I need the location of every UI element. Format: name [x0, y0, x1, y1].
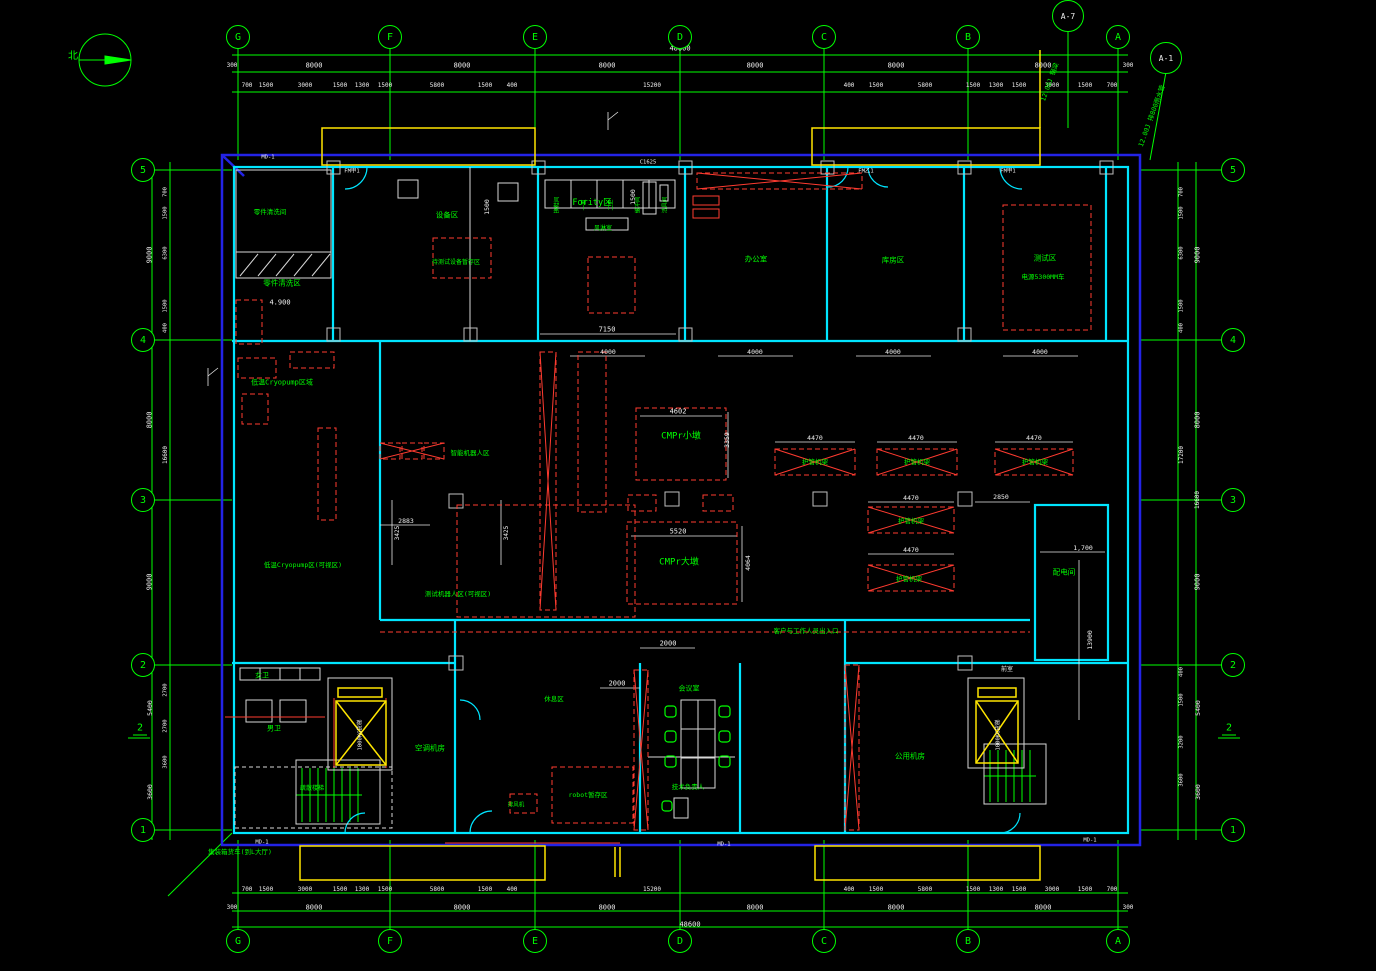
- plan-label: 8000: [888, 63, 905, 70]
- plan-label: 5800: [918, 887, 932, 893]
- plan-label: 2000: [660, 641, 677, 648]
- plan-label: 疏散楼梯: [300, 786, 324, 792]
- plan-label: 9000: [147, 247, 154, 264]
- plan-label: 办公室: [745, 255, 768, 263]
- plan-label: 13900: [1087, 630, 1094, 650]
- plan-label: 空调机房: [415, 744, 445, 752]
- plan-label: 9000: [147, 574, 154, 591]
- plan-label: 客户与工作人员出入口: [774, 628, 839, 635]
- plan-label: 4000: [600, 349, 616, 356]
- plan-label: 4000: [885, 349, 901, 356]
- grid-bubble-top-D: D: [668, 25, 692, 49]
- plan-label: 3000: [1045, 887, 1059, 893]
- plan-label: 16600: [1195, 491, 1201, 509]
- grid-bubble-top-C: C: [812, 25, 836, 49]
- grid-bubble-left-1: 1: [131, 818, 155, 842]
- plan-label: 技术负责人: [672, 784, 705, 791]
- plan-label: MD-1: [1083, 838, 1096, 844]
- plan-label: 3200: [1179, 735, 1185, 748]
- grid-bubble-right-2: 2: [1221, 653, 1245, 677]
- plan-label: 护管机架: [1022, 459, 1048, 466]
- plan-label: 1500: [478, 83, 492, 89]
- plan-label: CMPr小墩: [661, 433, 701, 442]
- plan-label: 1300: [989, 887, 1003, 893]
- plan-label: 15200: [643, 887, 661, 893]
- plan-label: 电源5300MM车: [1022, 274, 1065, 281]
- plan-label: 3600: [1179, 773, 1185, 786]
- stairs-left: [296, 768, 362, 822]
- stairs-right: [984, 750, 1036, 802]
- grid-bubble-top-G: G: [226, 25, 250, 49]
- plan-label: 设备区: [436, 211, 459, 219]
- plan-label: 3600: [147, 784, 154, 800]
- partitions-furniture: [208, 112, 1113, 828]
- plan-label: FM甲1: [1000, 169, 1015, 175]
- plan-label: 8000: [1035, 905, 1052, 912]
- plan-label: 排风机: [508, 803, 525, 809]
- plan-label: 6300: [163, 246, 169, 259]
- plan-label: 待测试设备暂存区: [432, 260, 480, 266]
- plan-label: 3600: [163, 755, 169, 768]
- plan-label: 400: [163, 323, 169, 333]
- plan-label: 1,700: [1073, 545, 1093, 552]
- plan-label: 1500: [1078, 83, 1092, 89]
- plan-label: 风淋室: [594, 226, 612, 232]
- plan-label: 4602: [670, 409, 687, 416]
- plan-label: 女卫: [255, 673, 269, 680]
- plan-label: 5800: [918, 83, 932, 89]
- plan-label: 3359: [724, 432, 731, 448]
- plan-label: 5800: [430, 887, 444, 893]
- grid-bubble-bottom-B: B: [956, 929, 980, 953]
- plan-label: 8000: [454, 63, 471, 70]
- plan-label: 1500: [869, 83, 883, 89]
- plan-label: robot暂存区: [568, 792, 607, 799]
- plan-label: 9000: [1195, 574, 1202, 591]
- plan-label: 4.900: [269, 300, 290, 307]
- grid-bubble-right-3: 3: [1221, 488, 1245, 512]
- plan-label: 1500: [333, 887, 347, 893]
- plan-label: 2883: [398, 518, 414, 525]
- plan-label: 3000: [298, 887, 312, 893]
- plan-label: 300: [1123, 905, 1134, 911]
- plan-label: 库房区: [882, 256, 905, 264]
- plan-label: 前室: [1001, 667, 1013, 673]
- plan-label: 1500: [259, 887, 273, 893]
- plan-label: C1625: [640, 160, 657, 166]
- plan-label: 1500: [1179, 693, 1185, 706]
- plan-label: 300: [1123, 63, 1134, 69]
- plan-label: Fority区: [572, 199, 611, 208]
- section-marker: 2: [1222, 723, 1236, 736]
- grid-bubble-bottom-F: F: [378, 929, 402, 953]
- plan-label: 1500: [1012, 887, 1026, 893]
- plan-label: 6300: [1179, 246, 1185, 259]
- equipment-annotations: [225, 173, 1091, 843]
- plan-label: 1500: [259, 83, 273, 89]
- plan-label: 5800: [430, 83, 444, 89]
- plan-label: 公用机房: [895, 752, 925, 760]
- plan-label: 2700: [163, 683, 169, 696]
- grid-bubble-left-5: 5: [131, 158, 155, 182]
- cad-floor-plan-viewport: 北 零件清洗间零件清洗区4.900设备区待测试设备暂存区Fority区风淋室办公…: [0, 0, 1376, 971]
- plan-label: 会议室: [679, 686, 700, 693]
- plan-label: 300: [227, 63, 238, 69]
- plan-label: 休息区: [544, 696, 564, 703]
- plan-label: 400: [844, 83, 855, 89]
- plan-label: 8000: [1195, 412, 1202, 429]
- plan-label: 缓冲间: [636, 197, 642, 214]
- grid-bubble-right-5: 5: [1221, 158, 1245, 182]
- plan-label: 一更: [582, 199, 588, 210]
- plan-label: 700: [242, 887, 253, 893]
- detail-callout-A-7: A-7: [1052, 0, 1084, 32]
- grid-bubble-top-B: B: [956, 25, 980, 49]
- plan-label: 400: [1179, 667, 1185, 677]
- plan-label: 8000: [888, 905, 905, 912]
- plan-label: 1300: [989, 83, 1003, 89]
- plan-label: 零件清洗间: [254, 209, 287, 216]
- plan-label: 8000: [306, 63, 323, 70]
- grid-bubble-top-F: F: [378, 25, 402, 49]
- plan-label: 9000: [1195, 247, 1202, 264]
- plan-label: 7150: [599, 327, 616, 334]
- plan-label: 护管机架: [802, 459, 828, 466]
- plan-label: 4470: [903, 547, 919, 554]
- plan-label: 3425: [395, 526, 401, 540]
- floor-plan-drawing: [0, 0, 1376, 971]
- plan-label: 400: [507, 887, 518, 893]
- plan-label: 4470: [908, 435, 924, 442]
- plan-label: 8000: [147, 412, 154, 429]
- plan-label: 测试机器人区(可视区): [425, 591, 491, 598]
- plan-label: 300: [227, 905, 238, 911]
- plan-label: 4000: [747, 349, 763, 356]
- grid-bubble-top-E: E: [523, 25, 547, 49]
- plan-label: 15200: [643, 83, 661, 89]
- plan-label: 5400: [147, 700, 154, 716]
- plan-label: 1500: [484, 199, 491, 215]
- plan-label: 700: [1107, 887, 1118, 893]
- plan-label: 零件清洗区: [263, 279, 301, 287]
- plan-label: 换鞋间: [555, 197, 561, 214]
- grid-bubble-bottom-A: A: [1106, 929, 1130, 953]
- plan-label: MD-1: [717, 842, 730, 848]
- plan-label: 1500: [630, 189, 637, 205]
- grid-bubble-right-1: 1: [1221, 818, 1245, 842]
- plan-label: 1500: [163, 299, 169, 312]
- plan-label: FM甲1: [344, 169, 359, 175]
- plan-label: MD-1: [255, 840, 268, 846]
- plan-label: 1500: [478, 887, 492, 893]
- plan-label: 4064: [745, 555, 752, 571]
- grid-bubble-bottom-C: C: [812, 929, 836, 953]
- grid-bubble-bottom-D: D: [668, 929, 692, 953]
- grid-bubble-bottom-G: G: [226, 929, 250, 953]
- plan-label: 8000: [599, 63, 616, 70]
- plan-label: 1500: [1179, 299, 1185, 312]
- plan-label: 400: [844, 887, 855, 893]
- plan-label: 700: [163, 187, 169, 197]
- plan-label: 测试区: [1034, 254, 1057, 262]
- plan-label: 1300: [355, 887, 369, 893]
- plan-label: 1300: [355, 83, 369, 89]
- plan-label: CMPr大墩: [659, 559, 699, 568]
- plan-label: 4470: [1026, 435, 1042, 442]
- plan-label: 1500: [378, 887, 392, 893]
- plan-label: 3425: [504, 526, 510, 540]
- plan-label: 8000: [454, 905, 471, 912]
- plan-label: 1500: [1012, 83, 1026, 89]
- section-marker: 2: [133, 723, 147, 736]
- plan-label: 48600: [679, 922, 700, 929]
- plan-label: 智能机器人区: [451, 450, 490, 457]
- plan-label: 配电间: [1053, 568, 1076, 576]
- plan-label: 护管机架: [898, 518, 924, 525]
- plan-label: 3600: [1195, 784, 1202, 800]
- plan-label: 低温Cryopump区(可视区): [264, 562, 342, 569]
- grid-bubble-right-4: 4: [1221, 328, 1245, 352]
- plan-label: 8000: [1035, 63, 1052, 70]
- plan-label: 17200: [1179, 446, 1185, 464]
- plan-label: 400: [507, 83, 518, 89]
- plan-label: 1500: [1179, 206, 1185, 219]
- plan-label: 4000: [1032, 349, 1048, 356]
- grid-bubble-left-4: 4: [131, 328, 155, 352]
- grid-bubble-bottom-E: E: [523, 929, 547, 953]
- plan-label: 男卫: [267, 726, 281, 733]
- plan-label: 1500: [1078, 887, 1092, 893]
- plan-label: 1500: [966, 887, 980, 893]
- plan-label: 3000: [298, 83, 312, 89]
- plan-label: 1500: [333, 83, 347, 89]
- plan-label: 5520: [670, 529, 687, 536]
- plan-label: 2850: [993, 494, 1009, 501]
- plan-label: 16600: [163, 446, 169, 464]
- plan-label: 2700: [163, 719, 169, 732]
- plan-label: 700: [1179, 187, 1185, 197]
- plan-label: 5400: [1195, 700, 1202, 716]
- plan-label: 8000: [306, 905, 323, 912]
- plan-label: FM乙1: [858, 169, 873, 175]
- plan-label: 4470: [807, 435, 823, 442]
- plan-label: 1500: [869, 887, 883, 893]
- plan-label: 400: [1179, 323, 1185, 333]
- plan-label: 集装箱货车(到L大厅): [208, 849, 272, 856]
- grid-bubble-left-3: 3: [131, 488, 155, 512]
- plan-label: 4470: [903, 495, 919, 502]
- plan-label: 700: [242, 83, 253, 89]
- plan-label: 1500: [163, 206, 169, 219]
- plan-label: 1500: [966, 83, 980, 89]
- plan-label: 1000KG货梯: [358, 720, 364, 751]
- plan-label: 1500: [378, 83, 392, 89]
- plan-label: 二更: [609, 199, 615, 210]
- north-label: 北: [68, 52, 78, 62]
- plan-label: 洁具间: [663, 197, 669, 214]
- plan-label: 8000: [747, 63, 764, 70]
- detail-callout-A-1: A-1: [1150, 42, 1182, 74]
- grid-bubble-left-2: 2: [131, 653, 155, 677]
- plan-label: 8000: [599, 905, 616, 912]
- plan-label: MD-1: [261, 155, 274, 161]
- plan-label: 护管机架: [896, 576, 922, 583]
- plan-label: 8000: [747, 905, 764, 912]
- plan-label: 低温Cryopump区域: [251, 380, 313, 387]
- plan-label: 护管机架: [904, 459, 930, 466]
- plan-label: 700: [1107, 83, 1118, 89]
- plan-label: 2000: [609, 681, 626, 688]
- plan-label: 1000KG货梯: [996, 720, 1002, 751]
- grid-bubble-top-A: A: [1106, 25, 1130, 49]
